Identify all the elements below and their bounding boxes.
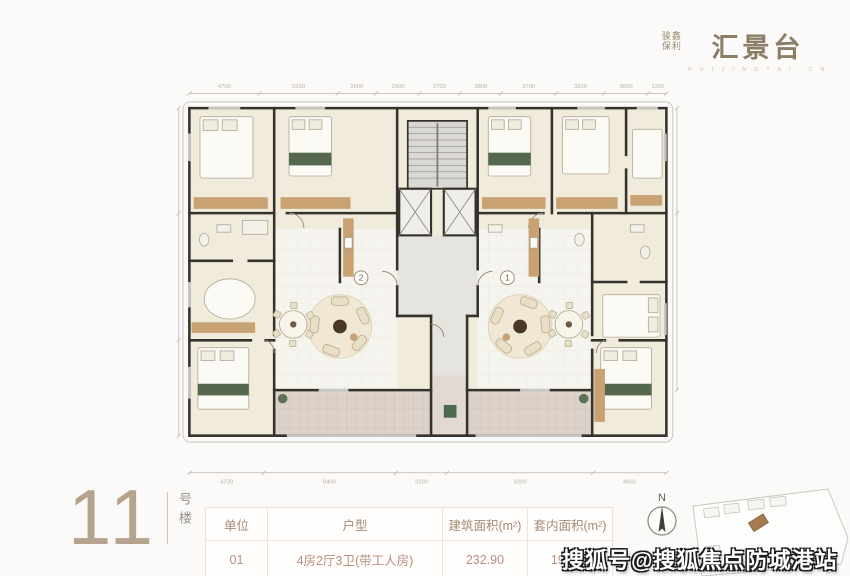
svg-text:2600: 2600 [350, 84, 364, 90]
page: 骏鑫 保利 汇景台 H U I J I N G T A I · C N 4700… [0, 0, 850, 576]
unit-badge-right: 1 [500, 271, 514, 285]
sofa-group-right [488, 295, 552, 359]
elevator-right [444, 189, 476, 236]
table-row: 01 4房2厅3卫(带工人房) 232.90 195.73 [206, 541, 613, 576]
cell-unit: 01 [206, 541, 268, 576]
floor-plan: 4700 5250 2600 2900 2700 2800 3700 3200 … [170, 70, 690, 494]
svg-text:2800: 2800 [474, 84, 488, 90]
brand-subtitle: H U I J I N G T A I · C N [688, 67, 828, 73]
svg-text:2: 2 [359, 273, 364, 283]
bed-corner-suite [632, 129, 662, 178]
svg-text:3000: 3000 [620, 84, 634, 90]
brand-small-top: 骏鑫 [662, 31, 682, 41]
dimension-line-right [675, 106, 679, 392]
svg-text:1: 1 [505, 273, 510, 283]
building-number-suffix: 号楼 [167, 492, 194, 544]
bed-2 [289, 117, 331, 176]
bed-3 [488, 117, 530, 176]
unit-spec-table: 单位 户型 建筑面积(m²) 套内面积(m²) 01 4房2厅3卫(带工人房) … [205, 507, 613, 576]
svg-text:3200: 3200 [415, 479, 429, 485]
svg-text:2900: 2900 [392, 84, 406, 90]
svg-text:1200: 1200 [651, 84, 665, 90]
svg-text:8400: 8400 [323, 479, 337, 485]
brand-logo-main: 汇景台 H U I J I N G T A I · C N [688, 26, 828, 73]
svg-text:2700: 2700 [433, 84, 447, 90]
brand-logo: 骏鑫 保利 汇景台 H U I J I N G T A I · C N [662, 26, 828, 73]
unit-badge-left: 2 [354, 271, 368, 285]
dimension-line-left [177, 106, 181, 438]
header-build-area: 建筑面积(m²) [442, 508, 527, 541]
watermark: 搜狐号@搜狐焦点防城港站 [562, 543, 850, 575]
elevator-left [399, 189, 431, 236]
brand-title: 汇景台 [711, 26, 804, 65]
svg-text:9200: 9200 [514, 479, 528, 485]
bed-wing-right [601, 348, 652, 409]
table-header-row: 单位 户型 建筑面积(m²) 套内面积(m²) [206, 508, 613, 541]
bed-4 [563, 117, 610, 174]
bed-wing-left [198, 348, 249, 409]
bed-master-right [603, 295, 660, 337]
bed-master-left [200, 117, 253, 178]
header-inner-area: 套内面积(m²) [527, 508, 612, 541]
compass-icon: N [648, 492, 676, 535]
sofa-group-left [308, 295, 372, 359]
svg-text:4700: 4700 [218, 84, 232, 90]
cell-type: 4房2厅3卫(带工人房) [267, 541, 442, 576]
brand-logo-small: 骏鑫 保利 [662, 31, 682, 51]
dimension-line-top: 4700 5250 2600 2900 2700 2800 3700 3200 … [187, 84, 668, 95]
svg-text:5250: 5250 [292, 84, 306, 90]
svg-text:N: N [658, 492, 666, 504]
lift-lobby [397, 235, 478, 316]
washer [444, 405, 457, 418]
building-number-block: 11 号楼 [68, 480, 194, 554]
round-tub [204, 279, 255, 319]
header-unit: 单位 [206, 508, 268, 541]
svg-text:3200: 3200 [574, 84, 588, 90]
brand-small-bottom: 保利 [662, 41, 682, 51]
cell-build-area: 232.90 [442, 541, 527, 576]
header-type: 户型 [267, 508, 442, 541]
dimension-line-bottom: 4700 8400 3200 9200 4600 [187, 471, 668, 486]
svg-text:4700: 4700 [220, 479, 234, 485]
svg-text:3700: 3700 [522, 84, 536, 90]
building-number: 11 [68, 480, 157, 554]
